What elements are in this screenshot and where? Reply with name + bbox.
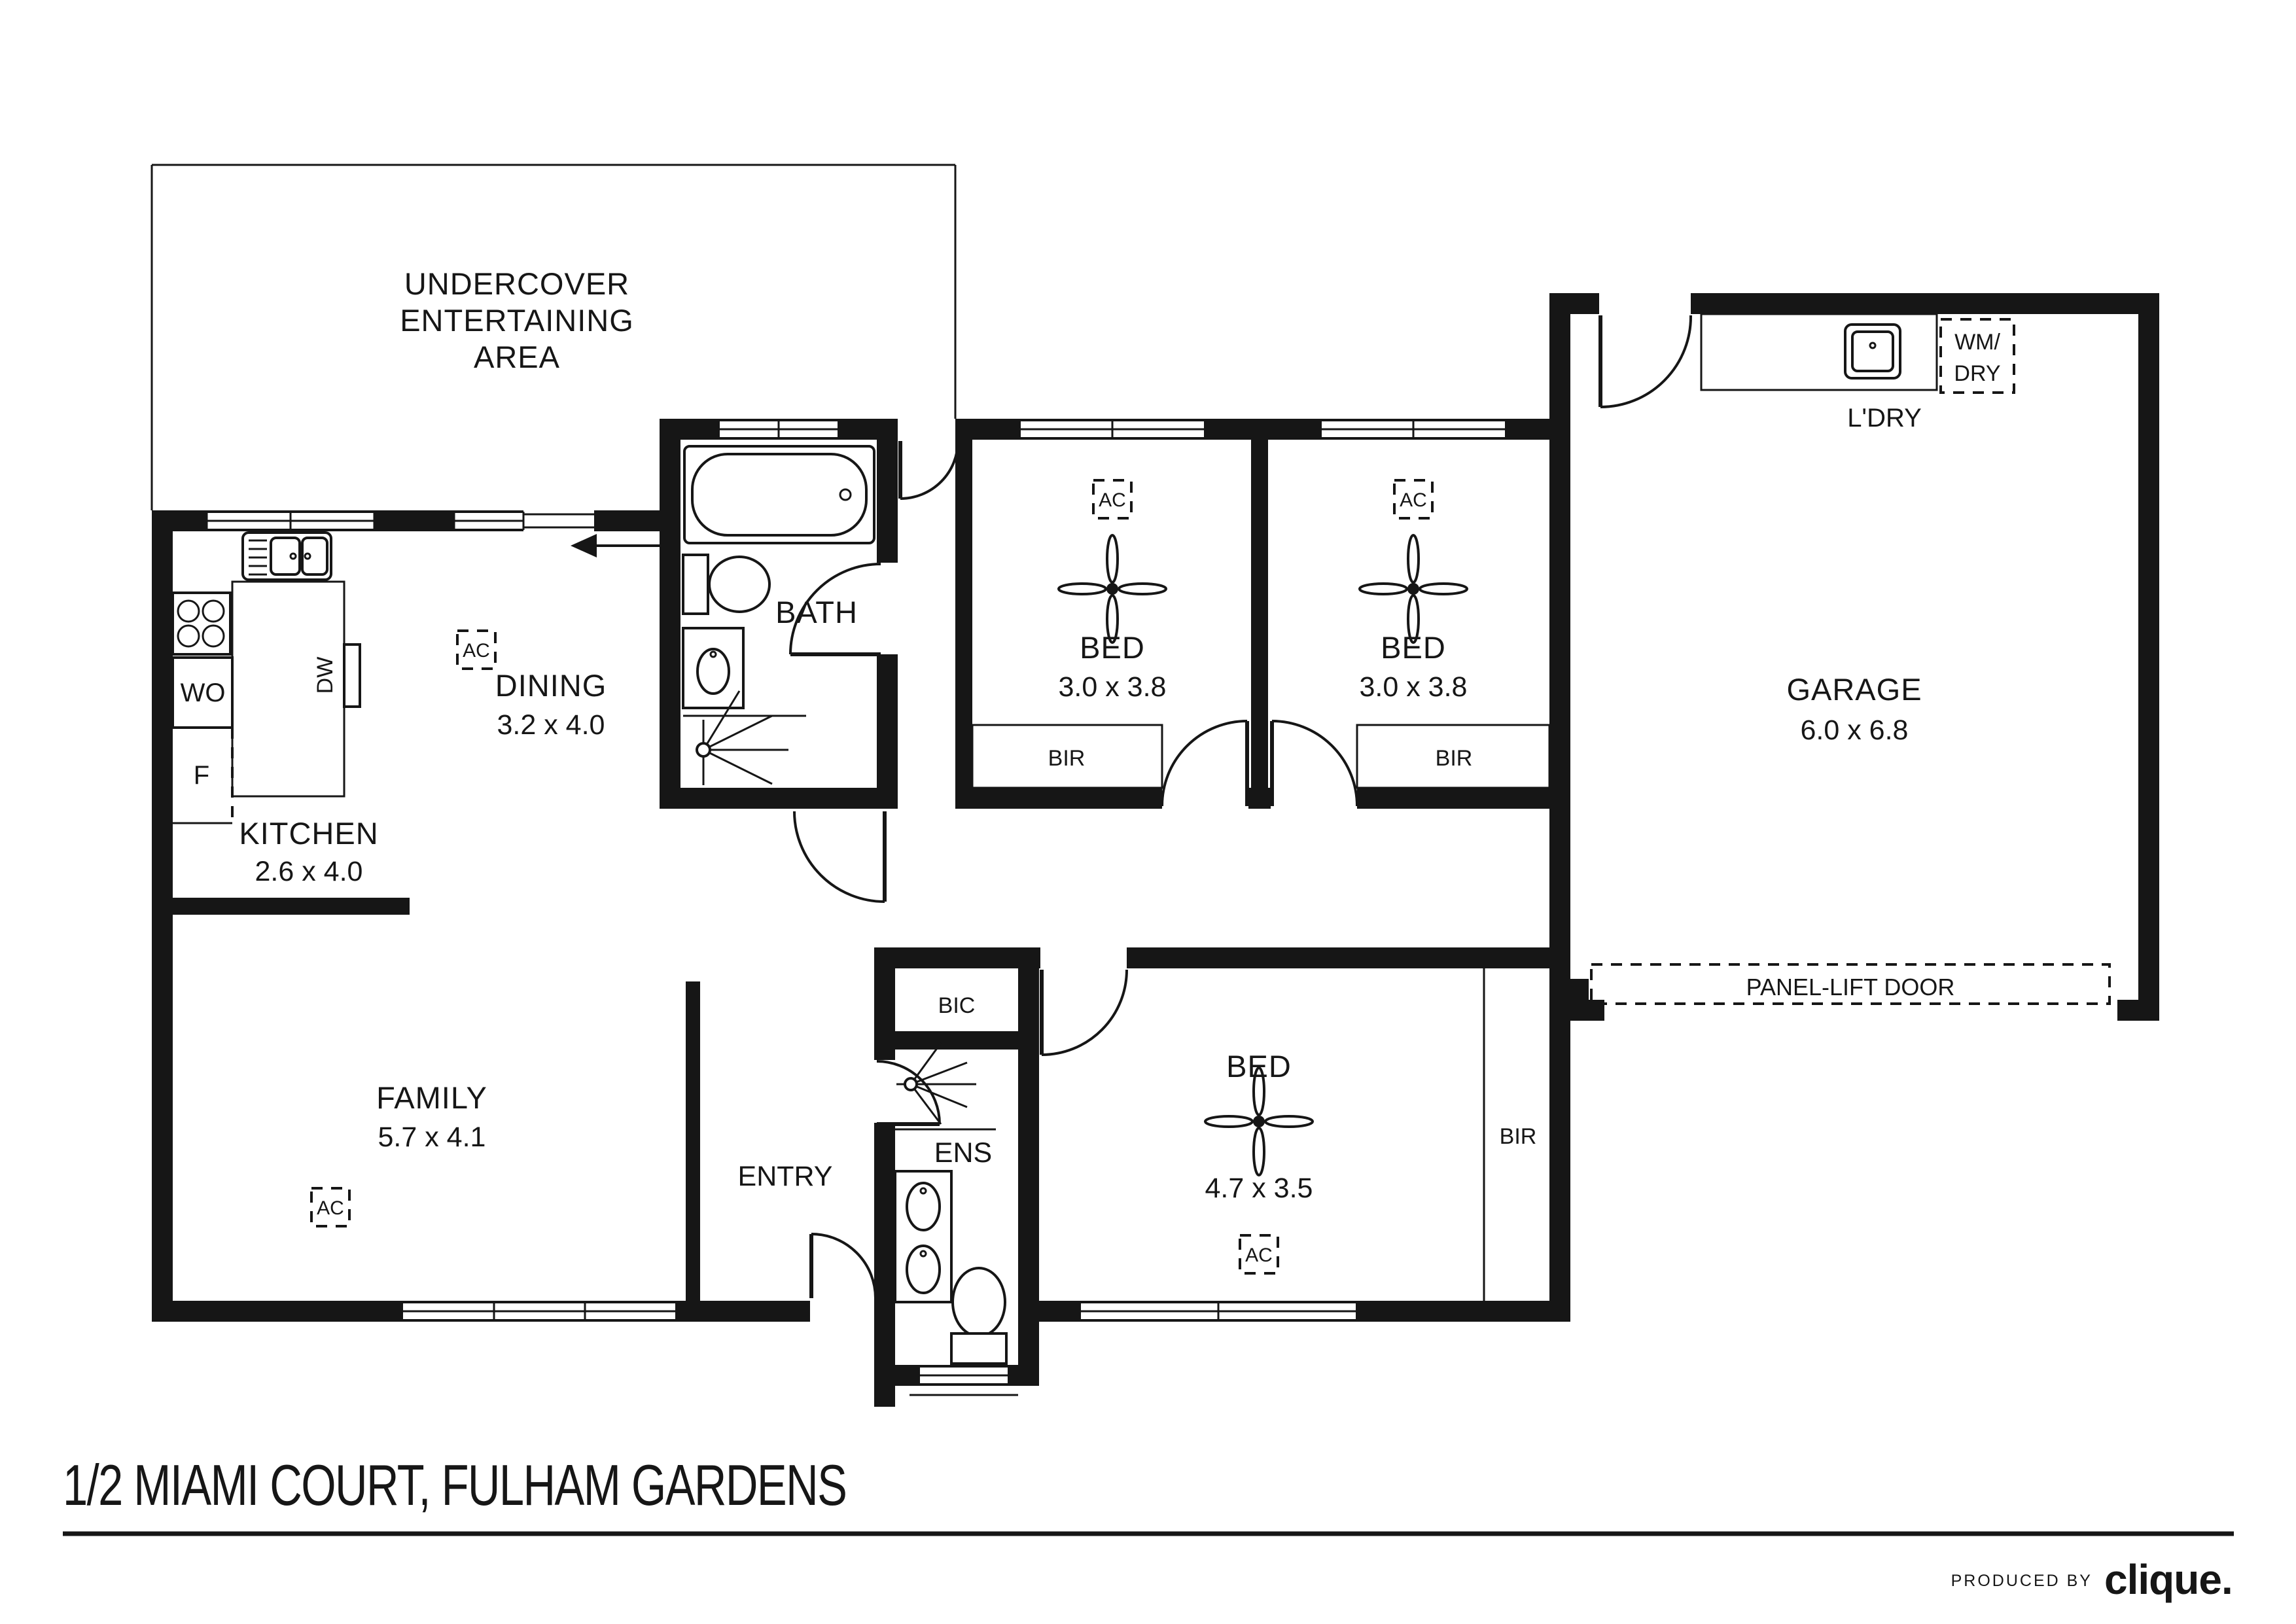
laundry-fixtures: WM/ DRY L'DRY <box>1701 314 2014 432</box>
hall-door <box>794 811 885 902</box>
garage-door <box>1600 315 1691 407</box>
wall-oven-label: WO <box>181 679 226 707</box>
window <box>403 1301 675 1322</box>
walls <box>152 293 2159 1407</box>
bed1-dims: 3.0 x 3.8 <box>1059 671 1167 703</box>
panel-lift-label: PANEL-LIFT DOOR <box>1746 974 1955 1000</box>
wm-label-line2: DRY <box>1954 361 2000 386</box>
ac-unit-icon: AC <box>1240 1235 1278 1273</box>
dishwasher-label: DW <box>313 657 338 694</box>
dining-name: DINING <box>495 668 607 703</box>
kitchen-fixtures: WO F DW <box>173 533 360 823</box>
kitchen-dims: 2.6 x 4.0 <box>255 856 363 887</box>
fridge-icon: F <box>173 728 232 823</box>
family-dims: 5.7 x 4.1 <box>378 1121 486 1153</box>
bed3-name: BED <box>1226 1049 1292 1084</box>
bed3-dims: 4.7 x 3.5 <box>1205 1173 1313 1204</box>
family-name: FAMILY <box>376 1080 487 1115</box>
window <box>1322 419 1505 440</box>
undercover-line1: UNDERCOVER <box>404 266 629 301</box>
bed3-door <box>1042 970 1127 1055</box>
bed2-dims: 3.0 x 3.8 <box>1360 671 1468 703</box>
ac-label-dining: AC <box>463 640 490 662</box>
window <box>1021 419 1204 440</box>
undercover-line2: ENTERTAINING <box>400 303 634 338</box>
ac-unit-icon: AC <box>311 1188 349 1226</box>
entry-door <box>811 1234 875 1298</box>
window <box>454 510 523 531</box>
panel-lift-door: PANEL-LIFT DOOR <box>1591 964 2110 1004</box>
undercover-area-label: UNDERCOVER ENTERTAINING AREA <box>400 266 634 374</box>
ac-unit-icon: AC <box>1093 480 1131 518</box>
cooktop-icon <box>173 593 230 654</box>
ac-unit-icon: AC <box>1394 480 1432 518</box>
bath-fixtures: BATH <box>683 446 874 785</box>
window <box>1081 1301 1356 1322</box>
bed2-name: BED <box>1381 630 1446 665</box>
ac-unit-icon: AC <box>457 631 495 669</box>
wm-label-line1: WM/ <box>1954 330 2000 355</box>
entry-label: ENTRY <box>738 1161 833 1192</box>
title-block: 1/2 MIAMI COURT, FULHAM GARDENS PRODUCED… <box>63 1453 2234 1603</box>
garage-name: GARAGE <box>1786 672 1922 707</box>
brand-logo: clique. <box>2104 1556 2233 1603</box>
ac-label-bed2: AC <box>1400 489 1427 511</box>
floor-plan-svg: UNDERCOVER ENTERTAINING AREA <box>0 0 2296 1624</box>
wall-oven-icon: WO <box>173 658 232 728</box>
kitchen-sink-icon <box>243 533 331 580</box>
fridge-label: F <box>194 761 209 790</box>
bed2-door <box>1272 721 1357 806</box>
kitchen-name: KITCHEN <box>239 816 378 851</box>
bir-label-bed3: BIR <box>1500 1124 1537 1149</box>
window <box>207 510 374 531</box>
ens-toilet-icon <box>951 1268 1006 1364</box>
undercover-line3: AREA <box>474 340 560 374</box>
ceiling-fan-icon <box>1205 1068 1313 1175</box>
floor-plan-page: UNDERCOVER ENTERTAINING AREA <box>0 0 2296 1624</box>
ens-vanity-icon <box>895 1171 951 1302</box>
vanity-icon <box>683 628 743 708</box>
island-bench-icon: DW <box>232 582 360 796</box>
bir-label-bed1: BIR <box>1048 746 1086 771</box>
room-labels: KITCHEN 2.6 x 4.0 DINING 3.2 x 4.0 FAMIL… <box>239 630 1922 1204</box>
washer-dryer-icon: WM/ DRY <box>1941 319 2014 393</box>
window <box>720 419 838 440</box>
laundry-label: L'DRY <box>1847 404 1922 432</box>
toilet-icon <box>683 555 769 614</box>
dining-dims: 3.2 x 4.0 <box>497 709 605 741</box>
ac-label-bed3: AC <box>1245 1244 1273 1266</box>
ens-label: ENS <box>934 1137 992 1169</box>
bir-label-bed2: BIR <box>1436 746 1473 771</box>
produced-by-label: PRODUCED BY <box>1951 1572 2093 1590</box>
bed1-name: BED <box>1080 630 1145 665</box>
ceiling-fan-icon <box>1059 535 1166 643</box>
window <box>910 1365 1018 1395</box>
bath-label: BATH <box>775 595 858 629</box>
ac-label-bed1: AC <box>1099 489 1126 511</box>
bed1-door <box>1162 721 1247 806</box>
ac-label-family: AC <box>317 1197 344 1219</box>
page-title: 1/2 MIAMI COURT, FULHAM GARDENS <box>63 1453 846 1517</box>
garage-dims: 6.0 x 6.8 <box>1801 715 1909 746</box>
ceiling-fan-icon <box>1360 535 1467 643</box>
bathtub-icon <box>684 446 874 543</box>
ens-shower-icon <box>895 1043 996 1129</box>
rear-hall-door <box>900 441 958 499</box>
built-in-robes: BIR BIR BIR <box>972 725 1549 1301</box>
laundry-sink-icon <box>1845 325 1900 378</box>
bic-label: BIC <box>938 993 976 1018</box>
arrow-icon <box>571 534 597 557</box>
